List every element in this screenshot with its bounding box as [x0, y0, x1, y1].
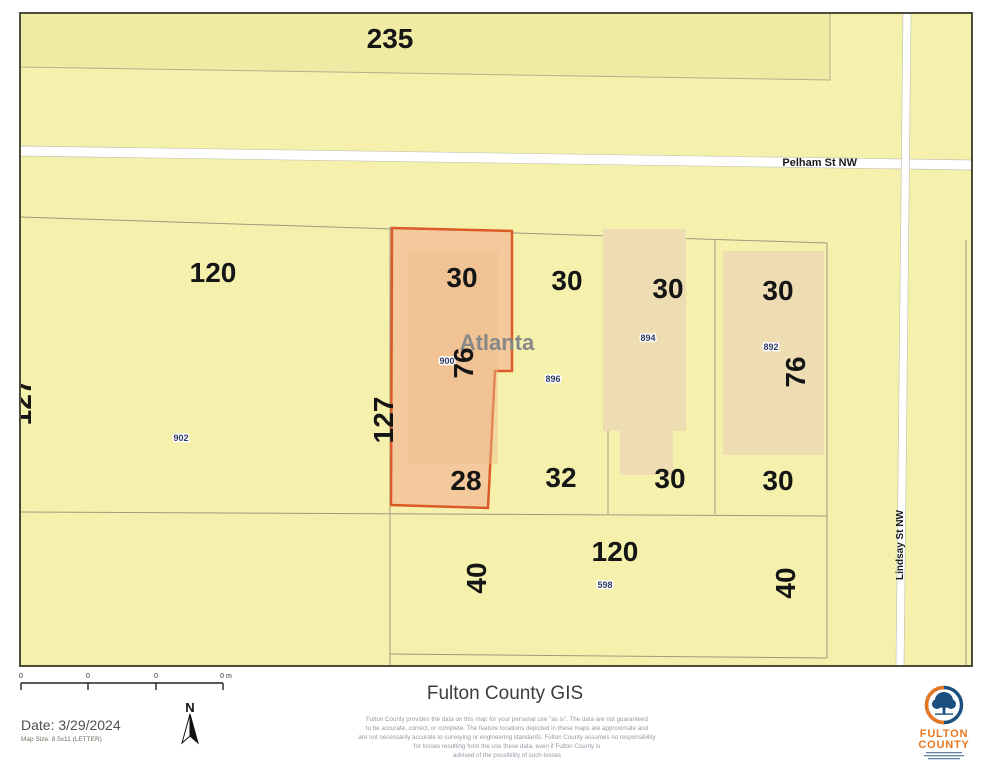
dim-896-top: 30	[551, 265, 582, 296]
map-canvas: 235 Pelham St NW Lindsay St NW 120 902 1…	[0, 0, 994, 768]
disclaimer-line-2: to be accurate, correct, or complete. Th…	[366, 725, 649, 732]
dim-894-bottom: 30	[654, 463, 685, 494]
dim-900-top: 30	[446, 262, 477, 293]
dim-902-front: 120	[190, 257, 237, 288]
north-arrow: N	[182, 700, 198, 743]
dim-894-top: 30	[652, 273, 683, 304]
street-label-lindsay: Lindsay St NW	[895, 509, 906, 580]
logo-name-line2: COUNTY	[918, 739, 969, 751]
parcel-id-892: 892	[763, 342, 778, 352]
scale-tick-0: 0	[19, 673, 23, 680]
block-label-235: 235	[367, 23, 414, 54]
dim-900-side: 127	[368, 397, 399, 444]
dim-598-right: 40	[770, 567, 801, 598]
disclaimer-line-3: are not necessarily accurate to surveyin…	[358, 734, 656, 741]
dim-900-bottom: 28	[450, 465, 481, 496]
dim-598-left: 40	[461, 562, 492, 593]
scale-tick-2: 0	[154, 673, 158, 680]
logo-caption-lines	[924, 752, 964, 759]
disclaimer: Fulton County provides the data on this …	[358, 716, 656, 759]
dim-900-depth: 76	[448, 347, 479, 378]
map-size: Map Size: 8.5x11 (LETTER)	[21, 736, 102, 743]
fulton-county-logo: FULTON COUNTY	[918, 688, 969, 760]
dim-896-bottom: 32	[545, 462, 576, 493]
parcel-id-896: 896	[545, 374, 560, 384]
parcel-id-598: 598	[597, 580, 612, 590]
street-label-pelham: Pelham St NW	[782, 157, 857, 169]
map-date: Date: 3/29/2024	[21, 717, 121, 733]
gis-map-page: 235 Pelham St NW Lindsay St NW 120 902 1…	[0, 0, 994, 768]
disclaimer-line-5: advised of the possibility of such losse…	[453, 752, 561, 759]
dim-892-top: 30	[762, 275, 793, 306]
parcel-id-902: 902	[173, 433, 188, 443]
disclaimer-line-4: for losses resulting from the use these …	[414, 743, 600, 750]
scale-tick-1: 0	[86, 673, 90, 680]
dim-892-bottom: 30	[762, 465, 793, 496]
scale-tick-3: 0 m	[220, 673, 232, 680]
dim-902-side: 127	[6, 379, 37, 426]
dim-598-front: 120	[592, 536, 639, 567]
map-title: Fulton County GIS	[427, 683, 583, 704]
scale-bar: 0 0 0 0 m	[19, 673, 232, 690]
dim-892-depth: 76	[780, 356, 811, 387]
disclaimer-line-1: Fulton County provides the data on this …	[366, 716, 648, 723]
parcel-id-894: 894	[640, 333, 655, 343]
north-arrow-label: N	[185, 700, 194, 715]
